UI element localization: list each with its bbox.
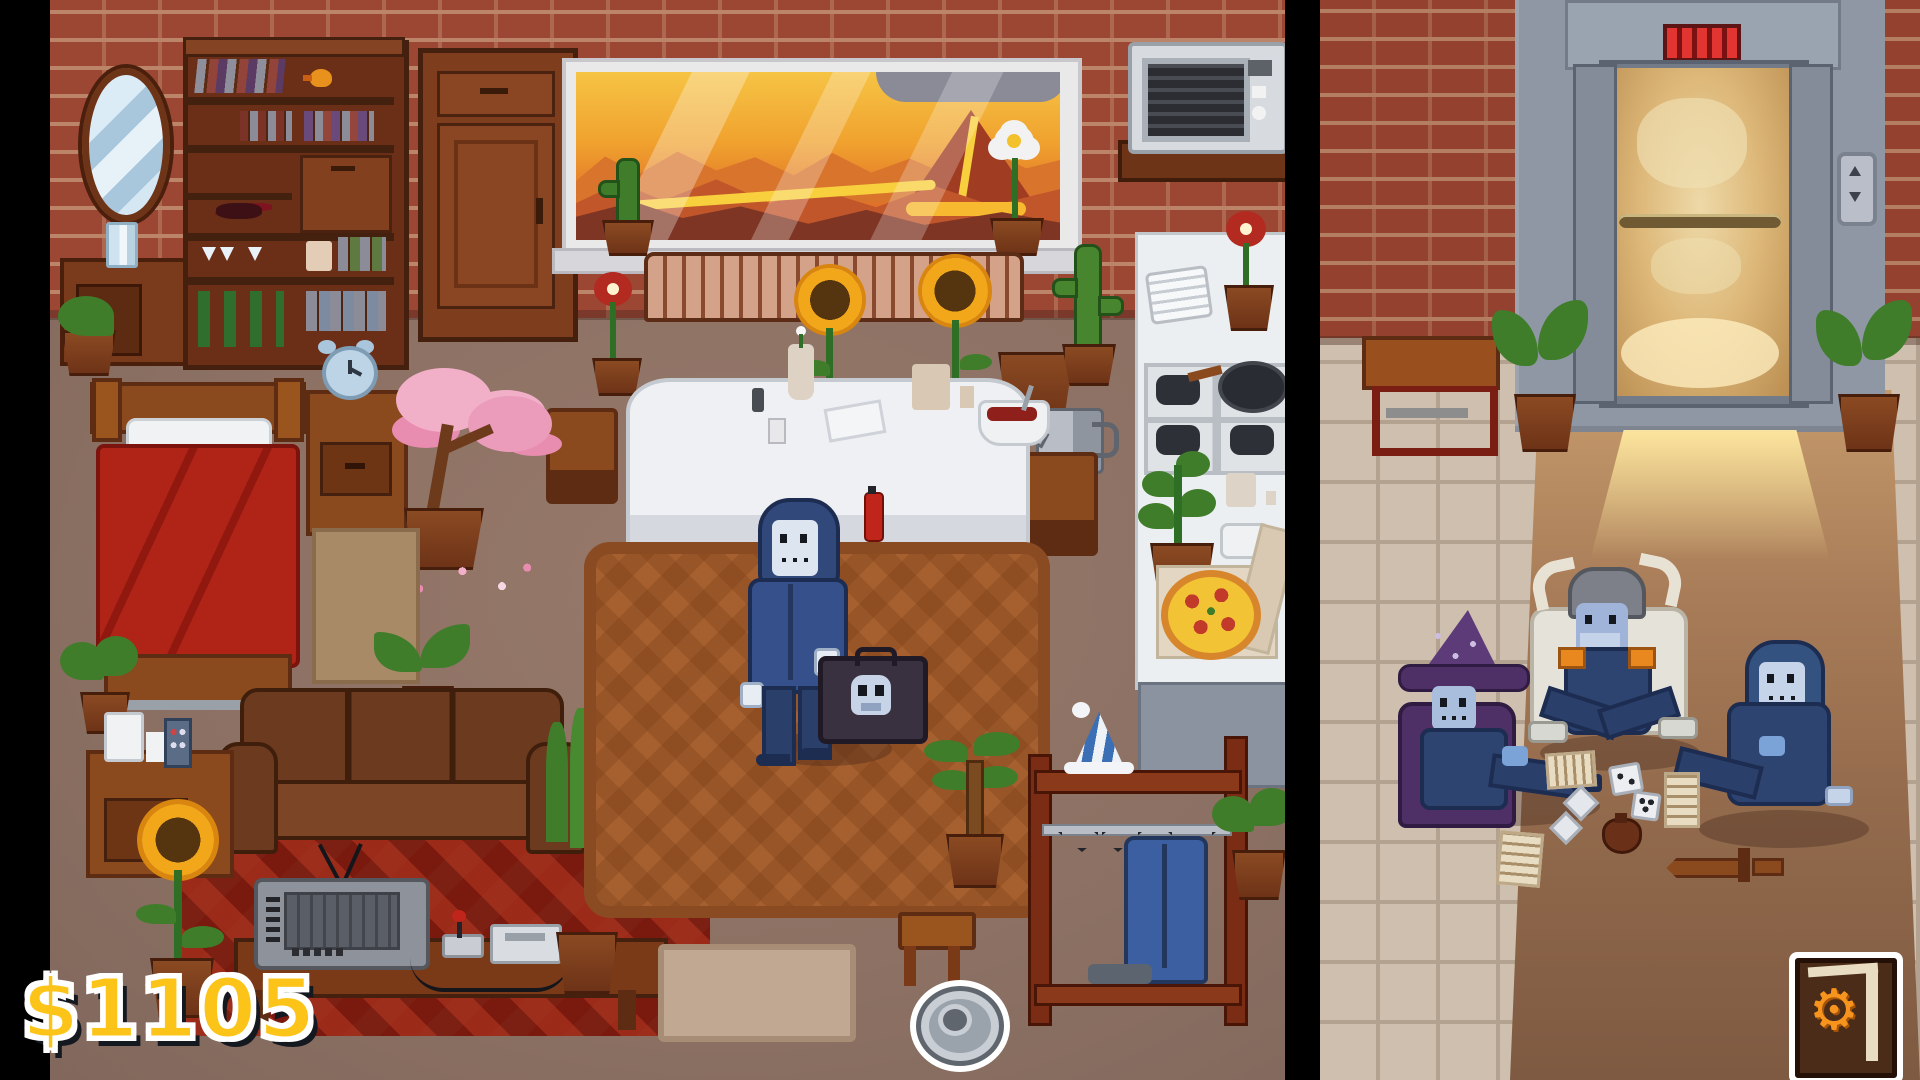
viking-shoe	[1528, 721, 1568, 743]
mug-icon	[306, 241, 332, 271]
player-shoe	[800, 748, 832, 760]
sunflower-head	[142, 804, 214, 876]
palm-plant	[924, 730, 1024, 890]
mask-mouth-dots	[1769, 696, 1795, 700]
flower-stem	[610, 302, 616, 360]
bench-shelf	[1386, 408, 1468, 418]
joystick-base	[442, 934, 484, 958]
wine-glass-icon	[248, 247, 262, 261]
player-mask	[772, 520, 818, 576]
bookshelf-top	[183, 37, 405, 57]
character-sheet	[1545, 750, 1597, 789]
vase-stem	[799, 334, 803, 348]
wardrobe-door	[437, 123, 555, 309]
sword-handle	[1752, 858, 1784, 876]
character-sheet	[1664, 772, 1700, 828]
table-stool	[1024, 452, 1098, 556]
books-row	[338, 237, 386, 271]
bowl-contents	[987, 407, 1037, 421]
rack-bottom-shelf	[1034, 984, 1242, 1006]
window	[562, 58, 1082, 272]
table-vase	[788, 344, 814, 400]
dice-pouch	[1602, 818, 1642, 854]
book-pages-edge	[1866, 969, 1878, 1061]
microwave	[1128, 42, 1288, 154]
books-row	[304, 111, 374, 141]
doormat	[658, 944, 856, 1042]
epaulet	[1558, 647, 1586, 669]
flower-stem	[1243, 243, 1249, 289]
corner-plant	[58, 296, 114, 336]
character-sheet	[1496, 830, 1545, 888]
sword-guard	[1738, 848, 1750, 882]
call-up-arrow-icon	[1849, 166, 1861, 176]
chain-item[interactable]	[916, 986, 1004, 1066]
flower-core	[1240, 223, 1252, 235]
bed-post	[92, 378, 122, 442]
plant-pot	[1838, 394, 1900, 452]
couch-back	[240, 688, 564, 792]
wardrobe-drawer	[437, 71, 555, 117]
hat-pompom	[1072, 702, 1090, 718]
bookshelf-shelf	[188, 145, 394, 153]
cactus-pot	[1062, 344, 1116, 386]
mask-mouth-dots	[1442, 716, 1466, 720]
microwave-buttons	[1248, 60, 1272, 76]
wizard-mask	[1432, 686, 1476, 730]
couch	[218, 688, 578, 856]
kitchen-counter	[1135, 232, 1299, 690]
door-handle	[536, 198, 543, 224]
pouch-knot	[1615, 813, 1627, 823]
npc-hand	[1825, 786, 1853, 806]
plant-stem	[1174, 465, 1182, 549]
sunflower-head	[922, 258, 988, 324]
pizza	[1161, 570, 1261, 660]
apartment-panel	[50, 0, 1285, 1080]
cactus-arm	[1098, 296, 1124, 316]
frying-pan	[1218, 361, 1288, 413]
drawer-handle	[480, 88, 508, 94]
briefcase-handle	[855, 647, 897, 666]
red-flower-plant	[584, 272, 644, 392]
hat-brim	[1064, 762, 1134, 774]
plant-pot	[1514, 394, 1576, 452]
tv-buttons	[292, 948, 344, 956]
cereal-bowl	[978, 400, 1050, 446]
plant-pot	[1232, 850, 1286, 900]
extinguisher-nozzle	[868, 486, 876, 494]
daisy-pot	[990, 218, 1044, 256]
hooded-npc[interactable]	[1675, 640, 1885, 855]
floor-glow	[1621, 318, 1779, 388]
blossom-cluster	[468, 396, 552, 452]
settings-gear-icon: ⚙	[1804, 981, 1864, 1041]
player-glove	[740, 682, 764, 708]
joystick-knob	[452, 910, 466, 922]
panel-divider	[1285, 0, 1320, 1080]
books-row	[240, 111, 292, 141]
cactus-pot	[602, 220, 654, 256]
sunflower-leaf	[960, 354, 992, 370]
duck-beak	[303, 75, 312, 81]
flower-core	[607, 283, 619, 295]
sunflower-head	[798, 268, 862, 332]
burner	[1230, 425, 1274, 455]
bottles-row	[198, 291, 284, 347]
skull-briefcase	[818, 656, 928, 744]
wine-glass-icon	[202, 247, 216, 261]
elevator-call-panel[interactable]	[1837, 152, 1877, 226]
player-zipper	[788, 584, 793, 680]
hall-plant	[1812, 296, 1920, 456]
hat-sparkles	[1424, 624, 1494, 664]
hall-bench	[1362, 336, 1492, 456]
coat-fold	[1162, 844, 1167, 968]
couch-seat	[240, 780, 564, 840]
spider-decoration	[216, 203, 262, 219]
blanket	[96, 444, 300, 668]
books-row	[194, 59, 286, 93]
settings-book-button[interactable]: ⚙	[1795, 958, 1897, 1078]
toy-sword	[1658, 846, 1788, 886]
counter-flower	[1214, 211, 1278, 331]
tv-back-panel	[284, 892, 400, 950]
interior-stain	[1651, 238, 1741, 294]
bonsai-trunk	[426, 424, 453, 515]
sill-daisy	[980, 124, 1050, 250]
palm-trunk	[966, 760, 984, 846]
daisy-stem	[1012, 158, 1018, 220]
npc-knee	[1759, 736, 1785, 756]
hallway-panel	[1320, 0, 1920, 1080]
money-counter: $1105	[22, 962, 317, 1057]
drawer-panel	[300, 155, 392, 233]
stool-leg	[948, 946, 960, 986]
wall-mirror	[82, 68, 170, 222]
player-character[interactable]	[722, 498, 882, 770]
palm-pot	[946, 834, 1004, 888]
books-row	[306, 291, 386, 331]
stool-top	[898, 912, 976, 950]
microwave-door	[1142, 58, 1250, 142]
corner-plant-pot	[62, 330, 116, 376]
npc-shadow	[1699, 810, 1869, 848]
hanging-coat	[1124, 836, 1208, 984]
tv-vents	[266, 894, 280, 942]
wardrobe	[418, 48, 578, 342]
cactus-arm	[1052, 278, 1078, 298]
wine-glass-icon	[220, 247, 234, 261]
elevator-interior	[1611, 68, 1789, 396]
table-mug	[912, 364, 950, 410]
glass-cup	[106, 222, 138, 268]
stool	[898, 912, 968, 986]
coffee-mug	[104, 712, 144, 762]
plate-stack	[1145, 265, 1214, 325]
skull-jaw	[861, 703, 881, 711]
bench-top	[1362, 336, 1500, 390]
napkin	[823, 399, 886, 443]
elevator-light-spill	[1590, 430, 1830, 560]
interior-stain	[1637, 98, 1747, 188]
elevator-indicator-lights	[1663, 24, 1741, 62]
pizza-box	[1156, 565, 1278, 659]
shoes	[1088, 964, 1152, 984]
bookshelf	[183, 40, 409, 370]
microwave-knob	[1252, 86, 1266, 98]
mask-mouth-dots	[782, 558, 808, 562]
stool-leg	[904, 946, 916, 986]
skull-emblem	[851, 675, 891, 715]
mug-icon	[1226, 473, 1256, 507]
joystick	[442, 918, 478, 954]
die-d6	[1630, 790, 1662, 822]
cactus-arm	[598, 180, 620, 198]
flower-pot	[1224, 285, 1274, 331]
pan-handle	[1187, 365, 1222, 382]
television	[254, 878, 430, 970]
daisy-center	[1007, 134, 1021, 148]
microwave-knob	[1252, 106, 1266, 120]
tv-remote	[164, 718, 192, 768]
player-shoe	[756, 754, 790, 766]
pepper-shaker	[768, 418, 786, 444]
rubber-duck-icon	[310, 69, 332, 87]
floor-cactus	[1046, 244, 1124, 384]
call-down-arrow-icon	[1849, 192, 1861, 202]
drawer-handle	[331, 166, 355, 171]
game-viewport: $1105 ⚙	[0, 0, 1920, 1080]
bed-post	[274, 378, 304, 442]
chain-center	[943, 1009, 967, 1031]
bench-frame	[1372, 386, 1498, 456]
hall-plant	[1488, 296, 1598, 456]
epaulet	[1628, 647, 1656, 669]
elevator-handrail	[1619, 214, 1781, 228]
salt-shaker	[752, 388, 764, 412]
sill-cactus	[594, 158, 654, 250]
bookshelf-shelf	[188, 97, 394, 105]
sword-blade	[1658, 858, 1742, 878]
plant-pot	[556, 932, 618, 994]
door-panel	[454, 140, 538, 288]
bookshelf-shelf	[188, 277, 394, 285]
bookshelf-shelf	[188, 193, 292, 200]
